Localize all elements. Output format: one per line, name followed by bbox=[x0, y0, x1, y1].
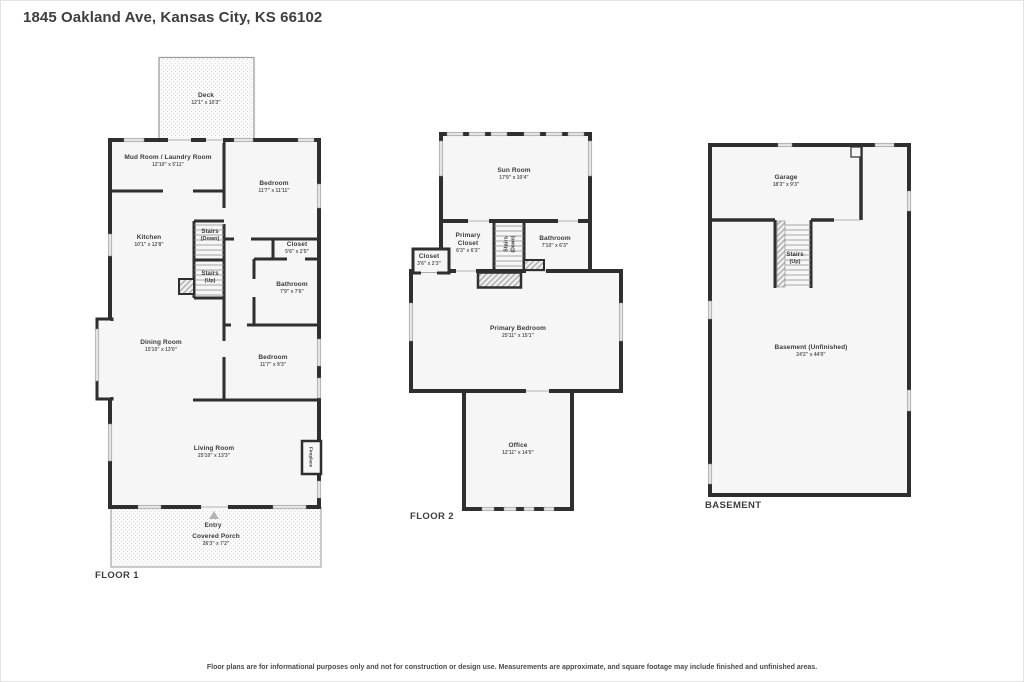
room-label-living: Living Room25'10" x 13'3" bbox=[194, 445, 234, 460]
room-label-primary-closet: Primary Closet6'3" x 6'3" bbox=[445, 232, 491, 255]
basement-plan bbox=[701, 136, 916, 516]
room-name: Deck bbox=[191, 92, 220, 100]
room-label-garage: Garage18'3" x 9'3" bbox=[773, 174, 800, 189]
floor1-plan bbox=[91, 51, 331, 591]
room-label-stairs-down-f1: Stairs(Down) bbox=[201, 228, 220, 243]
room-label-porch: Covered Porch26'3" x 7'2" bbox=[192, 533, 240, 548]
room-label-bedroom-mid: Bedroom11'7" x 9'3" bbox=[258, 354, 287, 369]
basement-stair-hatch bbox=[777, 221, 785, 287]
chimney-hatch bbox=[179, 279, 194, 294]
disclaimer-text: Floor plans are for informational purpos… bbox=[1, 664, 1023, 671]
garage-door-icon bbox=[851, 147, 861, 157]
room-label-office: Office12'11" x 14'0" bbox=[502, 442, 534, 457]
room-label-bathroom-f2: Bathroom7'10" x 6'3" bbox=[539, 235, 571, 250]
room-label-fireplace: Fireplace bbox=[309, 447, 314, 467]
room-label-stairs-down-f2: Stairs(Down) bbox=[503, 236, 518, 253]
room-label-bedroom-top: Bedroom11'7" x 11'11" bbox=[258, 180, 289, 195]
room-label-deck: Deck12'1" x 10'3" bbox=[191, 92, 220, 107]
room-label-closet-f2: Closet3'6" x 2'3" bbox=[417, 253, 441, 268]
room-label-basement-room: Basement (Unfinished)24'2" x 44'0" bbox=[775, 344, 848, 359]
page-title: 1845 Oakland Ave, Kansas City, KS 66102 bbox=[23, 9, 322, 26]
room-label-kitchen: Kitchen10'1" x 12'8" bbox=[134, 234, 163, 249]
room-label-stairs-up-basement: Stairs(Up) bbox=[786, 251, 803, 266]
floor-plan-page: 1845 Oakland Ave, Kansas City, KS 66102 bbox=[0, 0, 1024, 682]
room-label-sunroom: Sun Room17'9" x 10'4" bbox=[497, 167, 530, 182]
floor1-title: FLOOR 1 bbox=[95, 570, 139, 581]
room-label-mudroom: Mud Room / Laundry Room12'10" x 5'11" bbox=[124, 154, 211, 169]
basement-outline bbox=[710, 145, 909, 495]
floor2-chimney-hatch bbox=[524, 260, 544, 270]
stairwell-hatch bbox=[478, 273, 521, 288]
room-label-bathroom-f1: Bathroom7'9" x 7'6" bbox=[276, 281, 308, 296]
room-label-entry: Entry bbox=[204, 522, 221, 530]
basement-title: BASEMENT bbox=[705, 500, 762, 511]
room-dims: 12'1" x 10'3" bbox=[191, 100, 220, 107]
room-label-dining: Dining Room15'10" x 13'0" bbox=[140, 339, 182, 354]
room-label-primary-bedroom: Primary Bedroom25'11" x 15'1" bbox=[490, 325, 546, 340]
floor2-title: FLOOR 2 bbox=[410, 511, 454, 522]
room-label-stairs-up-f1: Stairs(Up) bbox=[201, 270, 218, 285]
room-label-closet-f1: Closet5'6" x 2'5" bbox=[285, 241, 309, 256]
